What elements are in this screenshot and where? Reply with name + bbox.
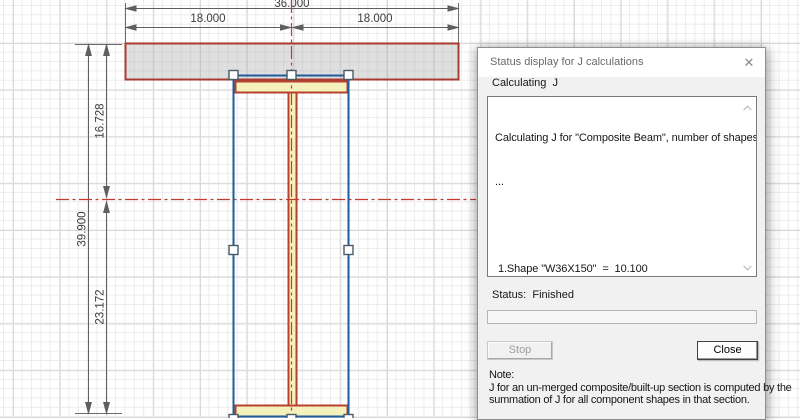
log-line: ...: [495, 175, 736, 190]
log-line: [495, 218, 736, 233]
dialog-titlebar[interactable]: Status display for J calculations ✕: [478, 48, 765, 77]
dim-label-total-height: 39.900: [77, 211, 89, 246]
dialog-title: Status display for J calculations: [490, 48, 643, 77]
note-line: J for an un-merged composite/built-up se…: [489, 382, 763, 395]
wbeam-web[interactable]: [289, 93, 297, 406]
stop-button[interactable]: Stop: [487, 341, 553, 360]
scroll-down-icon[interactable]: [743, 261, 753, 271]
status-dialog: Status display for J calculations ✕ Calc…: [477, 47, 766, 420]
dim-label-left-width: 18.000: [190, 13, 225, 25]
note-line: summation of J for all component shapes …: [489, 394, 763, 407]
handle-top-center[interactable]: [287, 71, 296, 80]
handle-top-left[interactable]: [229, 71, 238, 80]
handle-mid-right[interactable]: [344, 246, 353, 255]
status-text: Status: Finished: [492, 289, 574, 301]
handle-top-right[interactable]: [344, 71, 353, 80]
log-line: Calculating J for "Composite Beam", numb…: [495, 131, 736, 146]
vertical-dimensions: [86, 45, 110, 413]
note-title: Note:: [489, 369, 763, 382]
handle-bottom-right[interactable]: [344, 415, 353, 419]
calculation-log[interactable]: Calculating J for "Composite Beam", numb…: [487, 96, 757, 277]
close-button[interactable]: Close: [697, 341, 758, 360]
handle-bottom-left[interactable]: [229, 415, 238, 419]
close-icon[interactable]: ✕: [738, 52, 760, 73]
scroll-up-icon[interactable]: [743, 106, 753, 116]
dim-label-upper-height: 16.728: [95, 103, 107, 138]
handle-bottom-center[interactable]: [287, 415, 296, 419]
handle-mid-left[interactable]: [229, 246, 238, 255]
note-block: Note: J for an un-merged composite/built…: [489, 369, 763, 407]
log-line: 1.Shape "W36X150" = 10.100: [495, 262, 736, 277]
dim-label-lower-height: 23.172: [95, 289, 107, 324]
progress-bar: [487, 310, 757, 324]
calculating-label: Calculating J: [492, 77, 558, 89]
dim-label-right-width: 18.000: [357, 13, 392, 25]
